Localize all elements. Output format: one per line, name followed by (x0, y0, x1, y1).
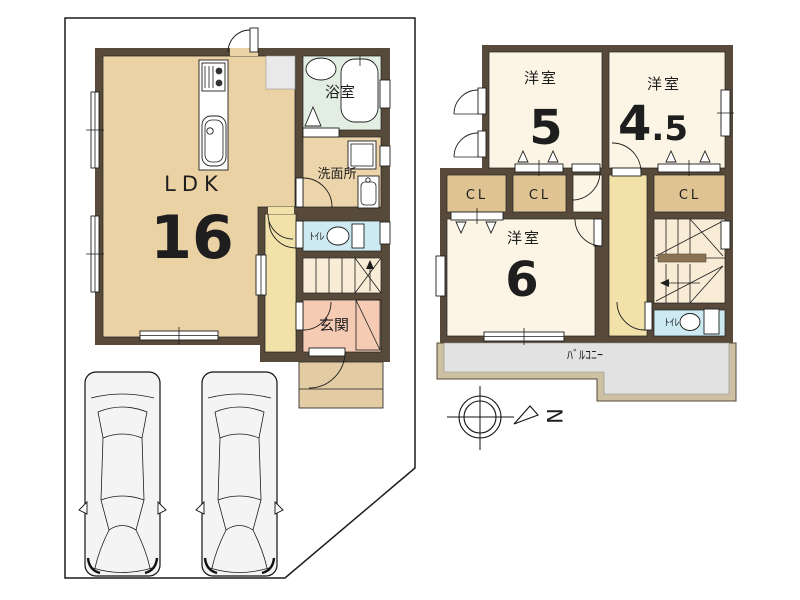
floor2-plan: 洋室 5 洋室 4.5 洋室 6 CL CL CL ﾄｲﾚ ﾊﾞﾙｺﾆｰ (436, 45, 736, 401)
room6-label: 洋室 (507, 229, 541, 247)
stairs-handrail (658, 254, 706, 262)
washroom-label: 洗面所 (317, 167, 356, 182)
vanity-icon (358, 176, 379, 208)
floor-plan-page: LDK 16 浴室 洗面所 ﾄｲﾚ 玄関 (0, 0, 800, 600)
balcony-label: ﾊﾞﾙｺﾆｰ (567, 348, 603, 362)
compass-north-label: N (542, 408, 566, 424)
bath-label: 浴室 (325, 83, 355, 101)
room5-label: 洋室 (524, 69, 558, 87)
washer-pan-icon (348, 141, 376, 169)
hallway-2f (609, 175, 647, 336)
room6-size-label: 6 (505, 252, 538, 308)
north-arrow-icon (514, 406, 538, 424)
car-1 (79, 372, 166, 576)
window-room5-casement-2 (454, 131, 486, 157)
room-hallway-1f (265, 214, 296, 352)
bath-door-leaf (303, 128, 339, 137)
window-stairs-right (721, 221, 730, 249)
room45-label: 洋室 (647, 75, 681, 93)
window-bath-right (380, 80, 390, 108)
closet-c-label: CL (679, 188, 701, 203)
toilet2f-label: ﾄｲﾚ (665, 318, 680, 329)
window-toilet1f-right (380, 222, 390, 244)
bath-basin-icon (306, 58, 336, 80)
ldk-label: LDK (164, 172, 224, 196)
opening-ldk-stairs (256, 255, 266, 295)
room5-size-label: 5 (529, 100, 562, 156)
kitchen-island (199, 60, 228, 170)
window-room5-casement-1 (454, 88, 486, 114)
closet-b-label: CL (529, 188, 551, 203)
landing (573, 175, 602, 212)
window-room6-left (436, 256, 445, 296)
ldk-size-label: 16 (150, 203, 234, 273)
toilet1f-label: ﾄｲﾚ (310, 232, 325, 243)
closet-a-label: CL (466, 188, 488, 203)
refrigerator-space (266, 56, 295, 89)
car-2 (196, 372, 283, 576)
floor-plan-canvas: LDK 16 浴室 洗面所 ﾄｲﾚ 玄関 (0, 0, 800, 600)
entrance-label: 玄関 (319, 316, 349, 334)
window-washroom-right (380, 146, 390, 166)
compass: N (447, 386, 566, 450)
stove-icon (202, 63, 225, 91)
